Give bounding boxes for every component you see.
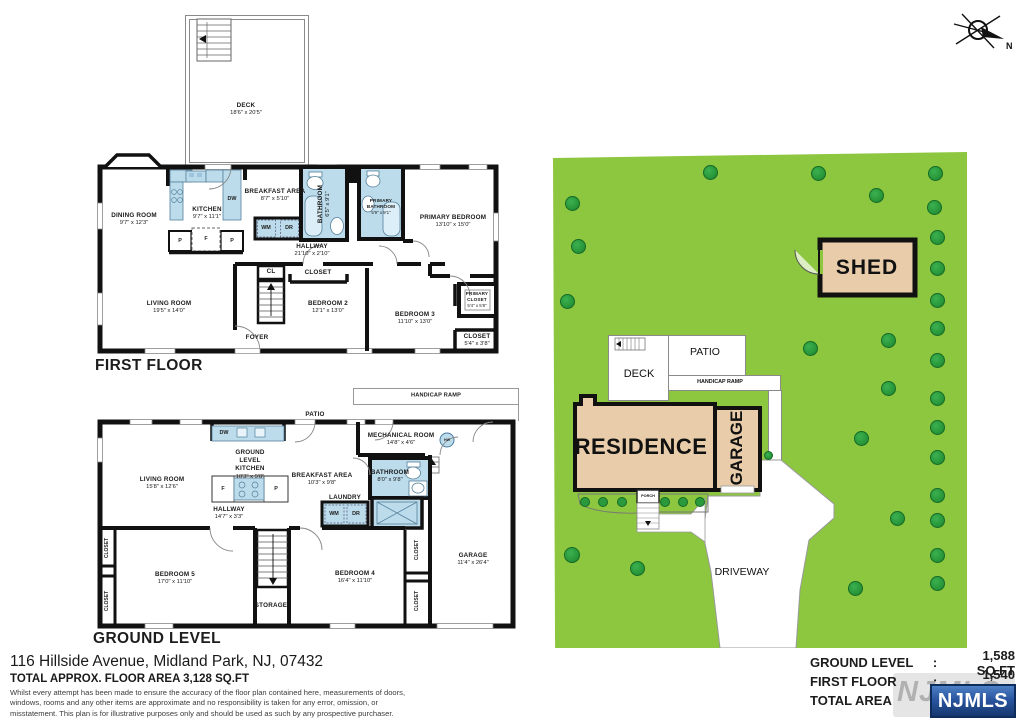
gl-dryer-label: DR xyxy=(352,511,360,517)
tree-icon xyxy=(930,450,945,465)
room-label-primary-bathroom: PRIMARY BATHROOM5'9" x 9'1" xyxy=(366,198,396,216)
driveway-label: DRIVEWAY xyxy=(715,566,770,578)
tree-icon xyxy=(564,547,580,563)
washer-label: WM xyxy=(261,225,271,231)
pantry-label-1: P xyxy=(178,238,182,244)
shed-label: SHED xyxy=(836,256,898,280)
tree-icon xyxy=(930,488,945,503)
tree-icon xyxy=(930,391,945,406)
room-label-closet-br: CLOSET5'4" x 3'8" xyxy=(464,333,491,349)
disclaimer-text: Whilst every attempt has been made to en… xyxy=(10,688,410,719)
room-label-storage: STORAGE xyxy=(255,602,287,610)
room-label-bedroom3: BEDROOM 311'10" x 13'0" xyxy=(395,311,435,327)
closet-label-right1: CLOSET xyxy=(414,540,420,560)
room-label-living: LIVING ROOM19'5" x 14'0" xyxy=(147,300,192,316)
tree-icon xyxy=(881,381,896,396)
bush-icon xyxy=(598,497,608,507)
row-colon: : xyxy=(928,655,942,670)
tree-icon xyxy=(764,451,773,460)
tree-icon xyxy=(630,561,645,576)
tree-icon xyxy=(571,239,586,254)
room-label-bedroom4: BEDROOM 416'4" x 11'10" xyxy=(335,570,375,586)
tree-icon xyxy=(881,333,896,348)
tree-icon xyxy=(811,166,826,181)
first-floor-title: FIRST FLOOR xyxy=(95,357,203,375)
tree-icon xyxy=(890,511,905,526)
room-label-breakfast: BREAKFAST AREA8'7" x 5'10" xyxy=(245,188,306,204)
handicap-ramp-label-gl: HANDICAP RAMP xyxy=(411,392,461,399)
tree-icon xyxy=(930,293,945,308)
room-label-primary-bedroom: PRIMARY BEDROOM13'10" x 15'0" xyxy=(420,214,486,230)
tree-icon xyxy=(930,548,945,563)
tree-icon xyxy=(927,200,942,215)
gl-dishwasher-label: DW xyxy=(220,430,229,436)
room-label-kitchen: KITCHEN9'7" x 11'1" xyxy=(192,206,221,222)
tree-icon xyxy=(930,513,945,528)
site-deck-stairs xyxy=(615,338,645,350)
tree-icon xyxy=(928,166,943,181)
room-label-deck: DECK 18'6" x 20'5" xyxy=(230,102,262,118)
gl-pantry-label: P xyxy=(274,486,278,492)
tree-icon xyxy=(930,230,945,245)
room-label-gl-hallway: HALLWAY14'7" x 3'3" xyxy=(213,506,245,522)
tree-icon xyxy=(565,196,580,211)
tree-icon xyxy=(560,294,575,309)
site-patio-label: PATIO xyxy=(690,346,720,358)
room-label-closet-mid: CLOSET xyxy=(305,269,332,277)
ground-level-walls xyxy=(85,380,525,652)
tree-icon xyxy=(869,188,884,203)
closet-label-left2: CLOSET xyxy=(104,591,110,611)
stairs-ground-level xyxy=(257,530,288,587)
room-label-cl: CL xyxy=(267,268,276,276)
room-label-bedroom2: BEDROOM 212'1" x 13'0" xyxy=(308,300,348,316)
bush-icon xyxy=(695,497,705,507)
gl-washer-label: WM xyxy=(329,511,339,517)
floor-plan-first: DECK 18'6" x 20'5" DINING ROOM9'7" x 12'… xyxy=(85,8,525,380)
room-label-foyer: FOYER xyxy=(246,334,269,342)
tree-icon xyxy=(854,431,869,446)
north-compass-icon: N xyxy=(948,6,1020,58)
room-label-dining: DINING ROOM9'7" x 12'3" xyxy=(111,212,157,228)
property-address: 116 Hillside Avenue, Midland Park, NJ, 0… xyxy=(10,653,323,671)
patio-label-gl: PATIO xyxy=(305,411,324,419)
bush-icon xyxy=(617,497,627,507)
row-label: GROUND LEVEL xyxy=(810,655,928,670)
tree-icon xyxy=(930,576,945,591)
fridge-label: F xyxy=(204,236,207,242)
room-label-gl-garage: GARAGE11'4" x 26'4" xyxy=(457,552,488,568)
water-heater-label: HW xyxy=(444,438,450,442)
tree-icon xyxy=(803,341,818,356)
room-label-bedroom5: BEDROOM 517'0" x 11'10" xyxy=(155,571,195,587)
row-label: FIRST FLOOR xyxy=(810,674,928,689)
bush-icon xyxy=(678,497,688,507)
room-label-bathroom: BATHROOM6'5" x 9'1" xyxy=(317,185,333,223)
room-label-gl-bathroom: BATHROOM8'0" x 9'8" xyxy=(371,469,409,485)
tree-icon xyxy=(930,321,945,336)
room-label-gl-breakfast: BREAKFAST AREA10'3" x 9'8" xyxy=(292,472,353,488)
total-area-line: TOTAL APPROX. FLOOR AREA 3,128 SQ.FT xyxy=(10,673,249,685)
site-ramp-label: HANDICAP RAMP xyxy=(697,379,743,385)
room-label-hallway: HALLWAY21'10" x 2'10" xyxy=(294,243,329,259)
tree-icon xyxy=(930,420,945,435)
tree-icon xyxy=(703,165,718,180)
residence-label: RESIDENCE xyxy=(575,434,708,460)
row-label: TOTAL AREA xyxy=(810,693,928,708)
porch-label: PORCH xyxy=(641,494,655,498)
ground-level-title: GROUND LEVEL xyxy=(93,630,221,648)
closet-label-right2: CLOSET xyxy=(414,591,420,611)
closet-label-left1: CLOSET xyxy=(104,538,110,558)
pantry-label-2: P xyxy=(230,238,234,244)
dryer-label: DR xyxy=(285,225,293,231)
room-label-gl-kitchen: GROUND LEVEL KITCHEN10'3" x 9'8" xyxy=(224,449,276,481)
north-letter: N xyxy=(1006,41,1013,51)
tree-icon xyxy=(848,581,863,596)
bush-icon xyxy=(580,497,590,507)
room-label-primary-closet: PRIMARY CLOSET5'4" x 5'8" xyxy=(462,291,492,309)
deck-structure xyxy=(186,16,309,167)
room-label-laundry: LAUNDRY xyxy=(329,494,361,502)
site-deck-label: DECK xyxy=(624,368,655,380)
dishwasher-label: DW xyxy=(228,196,237,202)
tree-icon xyxy=(930,353,945,368)
room-label-gl-living: LIVING ROOM15'8" x 12'6" xyxy=(140,476,185,492)
room-label-mechanical: MECHANICAL ROOM14'8" x 4'6" xyxy=(368,432,435,448)
floorplan-page: N xyxy=(0,0,1024,723)
tree-icon xyxy=(930,261,945,276)
floor-plan-ground: PATIO HANDICAP RAMP LIVING ROOM15'8" x 1… xyxy=(85,380,525,652)
site-garage-label: GARAGE xyxy=(727,411,747,486)
bush-icon xyxy=(660,497,670,507)
gl-fridge-label: F xyxy=(221,486,224,492)
njmls-logo: NJMLS xyxy=(930,684,1016,718)
site-plan: SHED DECK PATIO HANDICAP RAMP RESIDENCE … xyxy=(553,152,967,648)
